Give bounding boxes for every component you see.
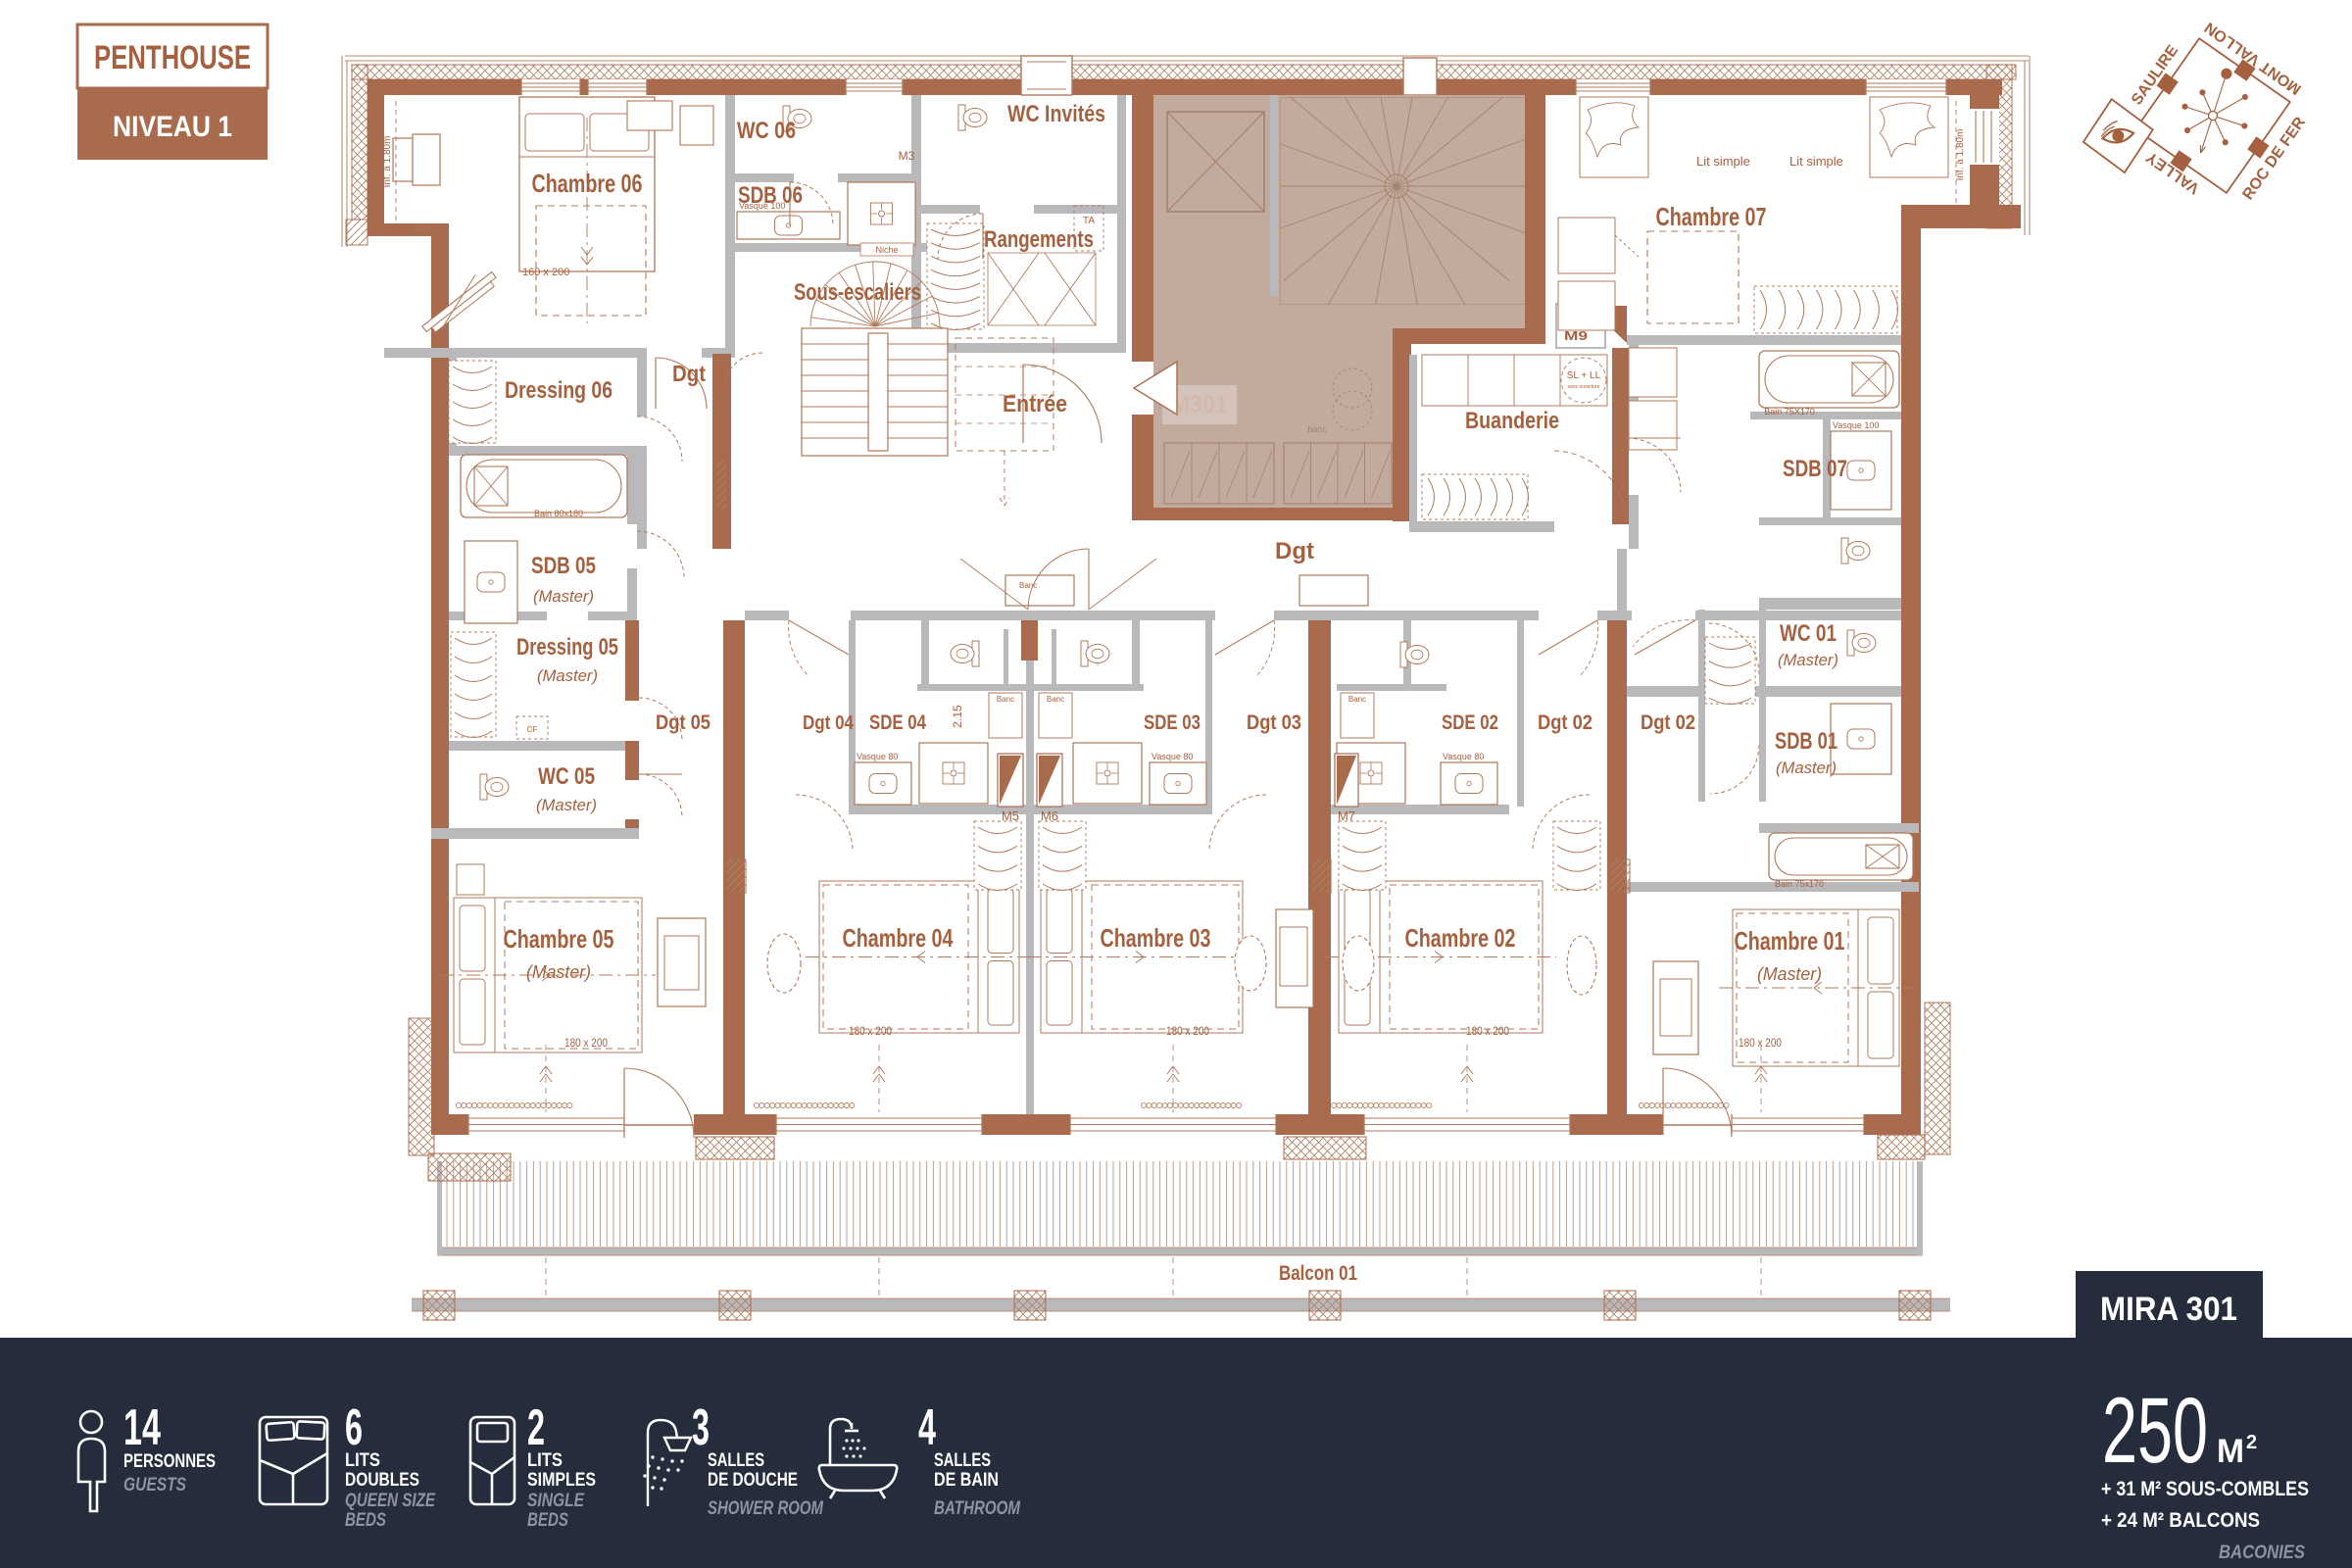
svg-text:Entrée: Entrée xyxy=(1003,391,1067,417)
svg-text:SALLES: SALLES xyxy=(708,1450,764,1471)
svg-text:SIMPLES: SIMPLES xyxy=(527,1470,596,1491)
svg-text:WC 06: WC 06 xyxy=(737,118,796,144)
svg-text:DE BAIN: DE BAIN xyxy=(934,1470,999,1491)
svg-text:Dgt: Dgt xyxy=(672,361,706,386)
svg-text:Vasque 100: Vasque 100 xyxy=(1833,420,1879,430)
svg-text:SINGLE: SINGLE xyxy=(527,1491,585,1511)
svg-text:Dgt 05: Dgt 05 xyxy=(656,711,710,734)
svg-text:Dgt: Dgt xyxy=(1275,538,1314,564)
svg-text:Dressing 06: Dressing 06 xyxy=(505,377,612,404)
svg-text:Bain 80x180: Bain 80x180 xyxy=(534,509,583,518)
svg-text:Bain 75X170: Bain 75X170 xyxy=(1764,407,1815,416)
svg-text:M301: M301 xyxy=(1171,391,1228,418)
svg-text:SHOWER ROOM: SHOWER ROOM xyxy=(708,1498,824,1519)
svg-text:6: 6 xyxy=(345,1399,363,1456)
svg-text:Sous-escaliers: Sous-escaliers xyxy=(794,279,921,306)
svg-text:DOUBLES: DOUBLES xyxy=(345,1470,419,1491)
svg-text:sans ouverture: sans ouverture xyxy=(1567,384,1599,390)
svg-text:M5: M5 xyxy=(1002,808,1019,823)
svg-text:Niche: Niche xyxy=(875,245,898,255)
svg-text:180 x 200: 180 x 200 xyxy=(1466,1024,1509,1038)
svg-text:PENTHOUSE: PENTHOUSE xyxy=(94,39,251,76)
svg-text:Vasque 80: Vasque 80 xyxy=(1151,752,1193,761)
svg-text:GUESTS: GUESTS xyxy=(123,1475,186,1495)
svg-text:Dgt 04: Dgt 04 xyxy=(803,712,855,734)
svg-text:Chambre 05: Chambre 05 xyxy=(504,924,614,954)
svg-text:Dgt 02: Dgt 02 xyxy=(1538,711,1592,734)
svg-text:BEDS: BEDS xyxy=(527,1510,568,1531)
svg-text:Inf. à 1.80m: Inf. à 1.80m xyxy=(382,136,393,188)
svg-text:M: M xyxy=(2217,1433,2244,1470)
svg-text:Chambre 06: Chambre 06 xyxy=(532,169,643,198)
svg-text:M6: M6 xyxy=(1041,808,1058,823)
svg-text:Chambre 02: Chambre 02 xyxy=(1405,923,1516,953)
svg-text:BEDS: BEDS xyxy=(345,1510,386,1531)
svg-text:(Master): (Master) xyxy=(1757,964,1822,984)
svg-text:M7: M7 xyxy=(1338,808,1355,823)
svg-text:(Master): (Master) xyxy=(526,962,591,982)
svg-text:BACONIES: BACONIES xyxy=(2219,1543,2305,1563)
svg-text:180 x 200: 180 x 200 xyxy=(564,1036,608,1050)
svg-text:SDE 03: SDE 03 xyxy=(1144,711,1200,734)
svg-text:PERSONNES: PERSONNES xyxy=(123,1451,216,1472)
svg-text:Dgt 03: Dgt 03 xyxy=(1247,711,1301,734)
svg-text:Lit simple: Lit simple xyxy=(1696,154,1750,169)
svg-text:(Master): (Master) xyxy=(536,796,597,814)
svg-text:Balcon 01: Balcon 01 xyxy=(1279,1262,1357,1285)
svg-text:Chambre 07: Chambre 07 xyxy=(1656,202,1767,231)
svg-text:NIVEAU 1: NIVEAU 1 xyxy=(113,111,232,143)
svg-text:Banc: Banc xyxy=(1047,695,1064,704)
svg-text:2.15: 2.15 xyxy=(951,705,964,728)
svg-text:Buanderie: Buanderie xyxy=(1465,408,1559,434)
svg-text:180 x 200: 180 x 200 xyxy=(1739,1036,1782,1050)
svg-text:SDE 02: SDE 02 xyxy=(1442,711,1498,734)
svg-text:Banc: Banc xyxy=(997,695,1014,704)
svg-text:2: 2 xyxy=(527,1399,545,1456)
svg-text:Chambre 04: Chambre 04 xyxy=(843,923,954,953)
svg-text:Banc: Banc xyxy=(1348,695,1366,704)
svg-text:BATHROOM: BATHROOM xyxy=(934,1498,1021,1519)
svg-text:Vasque 80: Vasque 80 xyxy=(857,752,898,761)
svg-text:LITS: LITS xyxy=(527,1450,563,1471)
svg-text:Dressing 05: Dressing 05 xyxy=(516,634,618,661)
svg-text:Inf. à 1.80m: Inf. à 1.80m xyxy=(1955,129,1966,181)
svg-text:MIRA 301: MIRA 301 xyxy=(2100,1291,2237,1328)
svg-text:SDB 01: SDB 01 xyxy=(1775,728,1837,755)
svg-text:Dgt 02: Dgt 02 xyxy=(1641,711,1695,734)
svg-text:M3: M3 xyxy=(899,149,915,163)
svg-text:+ 31 M² SOUS-COMBLES: + 31 M² SOUS-COMBLES xyxy=(2101,1478,2309,1500)
svg-text:Lit simple: Lit simple xyxy=(1789,154,1843,169)
svg-text:3: 3 xyxy=(692,1399,710,1456)
svg-text:WC Invités: WC Invités xyxy=(1007,101,1105,127)
svg-text:180 x 200: 180 x 200 xyxy=(849,1024,892,1038)
svg-text:(Master): (Master) xyxy=(533,587,594,606)
svg-text:DE DOUCHE: DE DOUCHE xyxy=(708,1470,798,1491)
svg-text:Vasque 80: Vasque 80 xyxy=(1443,752,1484,761)
svg-text:(Master): (Master) xyxy=(1776,759,1837,777)
svg-text:CF: CF xyxy=(527,725,538,734)
svg-text:LITS: LITS xyxy=(345,1450,380,1471)
svg-text:Chambre 01: Chambre 01 xyxy=(1735,926,1845,955)
svg-text:250: 250 xyxy=(2102,1379,2208,1483)
svg-text:QUEEN SIZE: QUEEN SIZE xyxy=(345,1491,436,1511)
svg-text:SALLES: SALLES xyxy=(934,1450,991,1471)
svg-text:Bain 75x170: Bain 75x170 xyxy=(1775,879,1824,889)
svg-text:SDB 07: SDB 07 xyxy=(1783,456,1847,482)
svg-text:SDE 04: SDE 04 xyxy=(869,711,926,734)
svg-text:4: 4 xyxy=(918,1399,936,1456)
svg-text:(Master): (Master) xyxy=(537,666,598,685)
svg-text:14: 14 xyxy=(123,1399,161,1456)
svg-text:160 x 200: 160 x 200 xyxy=(522,267,569,278)
svg-text:WC 05: WC 05 xyxy=(538,763,595,790)
svg-text:2: 2 xyxy=(2246,1432,2257,1453)
svg-text:SDB 05: SDB 05 xyxy=(531,553,596,579)
svg-text:SL + LL: SL + LL xyxy=(1567,370,1601,381)
svg-text:Chambre 03: Chambre 03 xyxy=(1101,923,1211,953)
svg-text:WC 01: WC 01 xyxy=(1780,620,1837,647)
svg-text:TA: TA xyxy=(1083,216,1095,226)
svg-text:SDB 06: SDB 06 xyxy=(738,182,803,209)
svg-text:banc: banc xyxy=(1307,424,1327,434)
svg-text:Rangements: Rangements xyxy=(984,226,1094,253)
svg-text:(Master): (Master) xyxy=(1778,651,1838,669)
svg-text:180 x 200: 180 x 200 xyxy=(1166,1024,1209,1038)
svg-text:+ 24 M² BALCONS: + 24 M² BALCONS xyxy=(2101,1509,2260,1532)
